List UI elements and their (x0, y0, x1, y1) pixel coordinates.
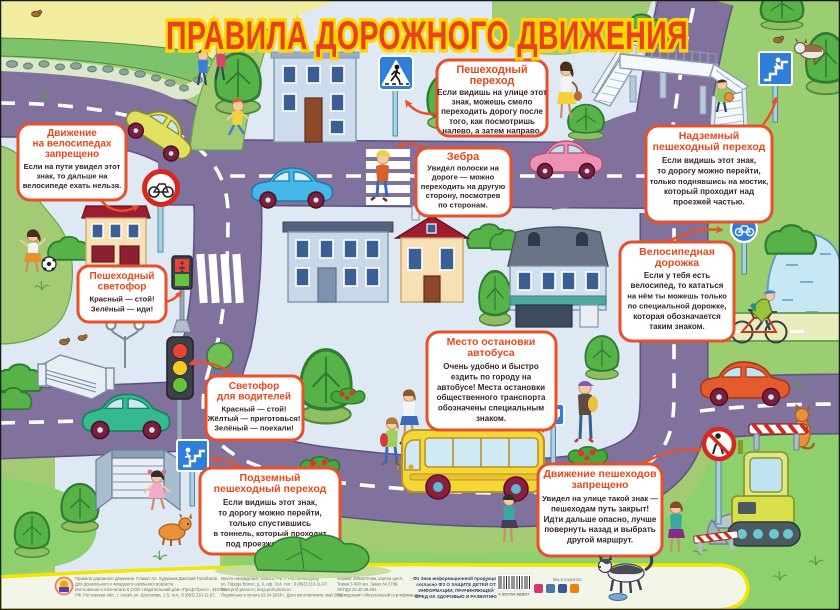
svg-text:Движение: Движение (47, 128, 97, 139)
svg-text:которая обозначается: которая обозначается (633, 312, 721, 321)
svg-text:по сторонам.: по сторонам. (438, 200, 488, 209)
svg-text:повернуть назад и выбрать: повернуть назад и выбрать (544, 525, 655, 534)
svg-text:пешеходам путь закрыт!: пешеходам путь закрыт! (551, 504, 649, 513)
svg-text:ВРЕД ИХ ЗДОРОВЬЮ И РАЗВИТИЮ: ВРЕД ИХ ЗДОРОВЬЮ И РАЗВИТИЮ (415, 594, 497, 599)
svg-text:www.prof-press.ru; knigi.prof-: www.prof-press.ru; knigi.prof-press.ru (221, 587, 291, 592)
svg-text:велосипеде ехать нельзя.: велосипеде ехать нельзя. (23, 181, 122, 190)
svg-text:4 620764 983637: 4 620764 983637 (498, 592, 530, 597)
svg-text:Подписано в печать 02.04.2018: Подписано в печать 02.04.2018 г. Дата из… (221, 593, 347, 598)
svg-text:автобусе! Места остановки: автобусе! Места остановки (437, 383, 545, 392)
svg-text:запрещено: запрещено (45, 149, 99, 160)
svg-text:дороге — можно: дороге — можно (432, 173, 495, 182)
svg-text:РФ, Ростовская обл., г. Аксай,: РФ, Ростовская обл., г. Аксай, ул. Шолох… (75, 593, 216, 598)
svg-text:ул. Города Волос, д. 6, оф. 31: ул. Города Волос, д. 6, оф. 314. тел.: 8… (221, 582, 328, 587)
svg-text:Если видишь этот знак,: Если видишь этот знак, (223, 498, 317, 507)
svg-text:согласно ФЗ О ЗАЩИТЕ ДЕТЕЙ ОТ: согласно ФЗ О ЗАЩИТЕ ДЕТЕЙ ОТ (416, 580, 496, 587)
svg-text:Идти дальше опасно, лучше: Идти дальше опасно, лучше (544, 515, 657, 524)
svg-text:на велосипедах: на велосипедах (33, 139, 112, 150)
svg-text:другой маршрут.: другой маршрут. (567, 536, 633, 545)
svg-text:ИНФОРМАЦИИ, ПРИЧИНЯЮЩЕЙ: ИНФОРМАЦИИ, ПРИЧИНЯЮЩЕЙ (418, 586, 493, 593)
svg-text:Если у тебя есть: Если у тебя есть (644, 271, 710, 280)
svg-text:того, как посмотришь: того, как посмотришь (449, 117, 535, 126)
svg-text:по специальной дорожке,: по специальной дорожке, (628, 302, 727, 311)
svg-text:для водителей: для водителей (217, 392, 291, 403)
svg-text:то дорогу можно перейти,: то дорогу можно перейти, (657, 166, 760, 175)
svg-text:Фз Знак информационной продукц: Фз Знак информационной продукции (413, 575, 499, 581)
svg-text:знак, можешь смело: знак, можешь смело (452, 98, 533, 107)
svg-text:дорожка: дорожка (655, 257, 699, 269)
svg-text:только спустившись: только спустившись (229, 519, 311, 528)
svg-text:Увидел полоски на: Увидел полоски на (427, 164, 499, 173)
svg-text:Зелёный — поехали!: Зелёный — поехали! (214, 424, 293, 433)
svg-text:переход: переход (470, 75, 515, 87)
svg-text:Очень удобно и быстро: Очень удобно и быстро (443, 362, 539, 371)
svg-text:обозначены специальным: обозначены специальным (438, 404, 544, 413)
svg-text:на нём ты можешь только: на нём ты можешь только (627, 291, 727, 300)
svg-text:автобуса: автобуса (467, 347, 514, 359)
svg-text:пешеходный переход: пешеходный переход (653, 141, 766, 153)
svg-text:Зебра: Зебра (447, 151, 480, 163)
svg-text:Пешеходный: Пешеходный (90, 271, 155, 282)
svg-text:переходить на другую: переходить на другую (421, 182, 506, 191)
svg-text:Тираж 5 000 экз. Заказ № 2789.: Тираж 5 000 экз. Заказ № 2789. (337, 582, 399, 587)
svg-text:общественного транспорта: общественного транспорта (437, 393, 546, 402)
svg-text:Красный — стой!: Красный — стой! (90, 295, 155, 304)
svg-text:знаком.: знаком. (476, 414, 506, 423)
svg-text:который проходит над: который проходит над (664, 187, 754, 196)
svg-text:Если видишь на улице этот: Если видишь на улице этот (437, 88, 547, 97)
svg-text:светофор: светофор (98, 281, 147, 293)
svg-text:проезжей частью.: проезжей частью. (673, 198, 745, 207)
svg-text:то дорогу можно перейти,: то дорогу можно перейти, (218, 508, 321, 517)
svg-text:Мы в соцсетях:: Мы в соцсетях: (553, 577, 583, 582)
svg-text:запрещено: запрещено (572, 479, 629, 491)
svg-text:налево, а затем направо.: налево, а затем направо. (442, 126, 542, 135)
svg-text:Жёлтый — приготовься!: Жёлтый — приготовься! (207, 414, 301, 423)
svg-text:Увидел на улице такой знак —: Увидел на улице такой знак — (542, 494, 658, 503)
svg-text:Не подлежит обязательной серти: Не подлежит обязательной сертификации. (337, 593, 421, 598)
svg-text:Изготовлено и отпечатано в ООО: Изготовлено и отпечатано в ООО «Издатель… (75, 587, 227, 592)
svg-text:таким знаком.: таким знаком. (649, 322, 705, 331)
svg-text:Светофор: Светофор (229, 380, 279, 392)
svg-text:Если на пути увидел этот: Если на пути увидел этот (24, 162, 121, 171)
svg-text:сторону, посмотрев: сторону, посмотрев (426, 191, 501, 200)
svg-text:переходить дорогу после: переходить дорогу после (441, 107, 543, 116)
svg-text:знак, то дальше на: знак, то дальше на (37, 172, 109, 181)
svg-text:ПРАВИЛА ДОРОЖНОГО ДВИЖЕНИЯ: ПРАВИЛА ДОРОЖНОГО ДВИЖЕНИЯ (166, 14, 688, 58)
svg-text:ездить по городу на: ездить по городу на (451, 372, 532, 381)
svg-text:Правила дорожного движения. Пл: Правила дорожного движения. Плакат А2. Х… (75, 576, 218, 581)
svg-text:ОКПД2 32.40.39.251: ОКПД2 32.40.39.251 (337, 587, 377, 592)
svg-text:Красный — стой!: Красный — стой! (222, 405, 287, 414)
svg-text:пешеходный переход: пешеходный переход (214, 483, 327, 495)
svg-text:Если видишь этот знак,: Если видишь этот знак, (662, 156, 756, 165)
svg-text:Зелёный — иди!: Зелёный — иди! (91, 305, 153, 314)
svg-text:Для дошкольного и младшего шко: Для дошкольного и младшего школьного воз… (75, 582, 174, 587)
svg-text:только поднявшись на мостик,: только поднявшись на мостик, (650, 177, 769, 186)
svg-text:велосипед, то кататься: велосипед, то кататься (631, 281, 724, 290)
